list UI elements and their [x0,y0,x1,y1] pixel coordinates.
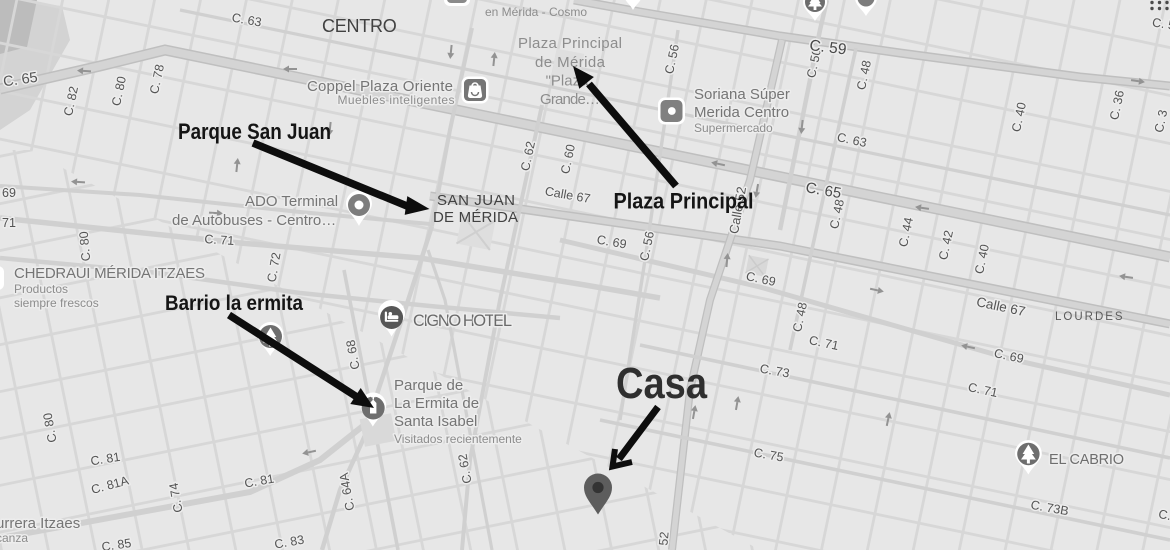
svg-text:ADO Terminal: ADO Terminal [245,193,338,210]
svg-text:La Ermita de: La Ermita de [394,395,479,412]
svg-text:69: 69 [2,186,16,200]
svg-text:Visitados recientemente: Visitados recientemente [394,432,522,446]
svg-text:Productos: Productos [14,282,68,296]
svg-text:de Mérida: de Mérida [535,54,606,71]
svg-text:urrera Itzaes: urrera Itzaes [0,515,80,532]
svg-text:EL CABRIO: EL CABRIO [1049,452,1124,468]
svg-text:siempre frescos: siempre frescos [14,296,99,310]
svg-text:71: 71 [2,216,16,230]
svg-text:en Mérida - Cosmo: en Mérida - Cosmo [485,5,587,19]
svg-text:Parque de: Parque de [394,377,463,394]
svg-text:Merida Centro: Merida Centro [694,104,789,121]
svg-text:de Autobuses - Centro…: de Autobuses - Centro… [172,212,336,229]
svg-text:SAN JUAN: SAN JUAN [437,192,518,209]
svg-text:CHEDRAUI MÉRIDA ITZAES: CHEDRAUI MÉRIDA ITZAES [14,265,205,282]
svg-text:Plaza Principal: Plaza Principal [518,35,622,52]
svg-text:Muebles inteligentes: Muebles inteligentes [338,93,455,107]
svg-text:DE MÉRIDA: DE MÉRIDA [433,209,521,226]
svg-text:CIGNO HOTEL: CIGNO HOTEL [413,312,512,330]
svg-text:Supermercado: Supermercado [694,121,773,135]
svg-text:C. 71: C. 71 [204,232,235,248]
svg-text:Barrio la ermita: Barrio la ermita [165,292,303,315]
svg-text:Plaza Principal: Plaza Principal [614,189,754,214]
svg-text:Santa Isabel: Santa Isabel [394,413,477,430]
svg-text:CENTRO: CENTRO [322,16,400,36]
svg-text:C.: C. [1157,507,1170,523]
svg-text:canza: canza [0,531,28,545]
svg-text:C. 80: C. 80 [77,231,94,262]
svg-text:Grande…: Grande… [540,91,600,108]
svg-text:52: 52 [656,531,671,546]
svg-text:Soriana Súper: Soriana Súper [694,86,790,103]
svg-text:LOURDES: LOURDES [1055,311,1125,323]
svg-text:Casa: Casa [616,359,707,408]
